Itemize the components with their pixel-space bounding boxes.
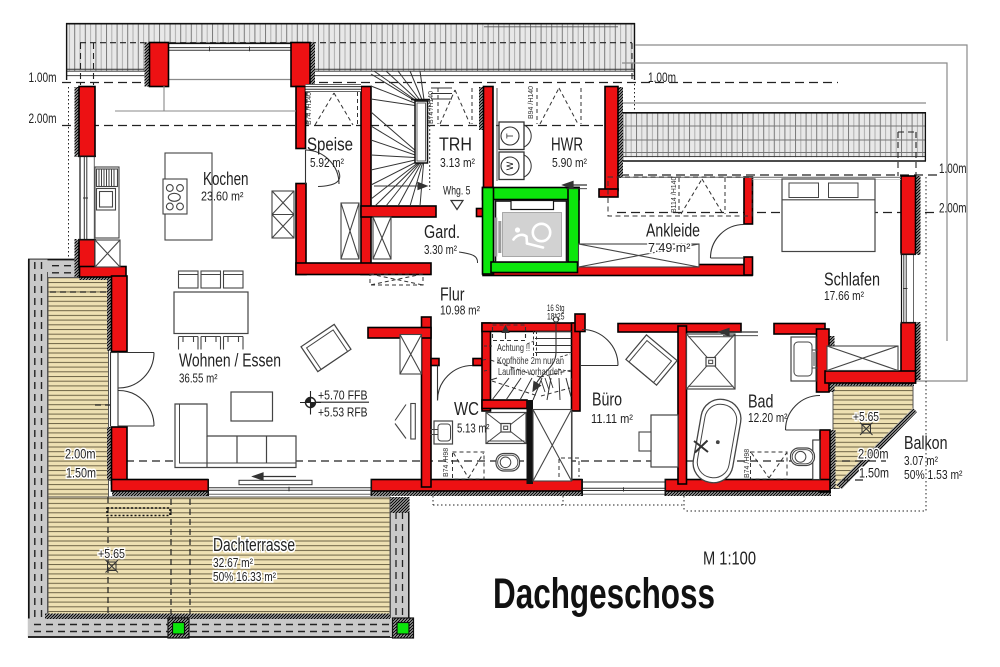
svg-text:11.11 m²: 11.11 m² (591, 412, 633, 426)
svg-text:Speise: Speise (307, 134, 353, 155)
svg-text:Wohnen / Essen: Wohnen / Essen (179, 350, 281, 371)
svg-text:50% 16.33 m²: 50% 16.33 m² (213, 570, 276, 584)
svg-text:M 1:100: M 1:100 (703, 549, 756, 569)
svg-text:7.49 m²: 7.49 m² (648, 241, 690, 255)
svg-text:Achtung !!: Achtung !! (497, 342, 530, 354)
svg-text:12.20 m²: 12.20 m² (748, 411, 788, 425)
svg-text:3.30 m²: 3.30 m² (424, 243, 457, 257)
svg-text:B74 /H140: B74 /H140 (306, 92, 313, 125)
svg-text:B74 /H98: B74 /H98 (443, 448, 450, 477)
svg-text:B114 /H140: B114 /H140 (671, 176, 678, 213)
svg-text:1.00m: 1.00m (939, 160, 967, 176)
svg-text:T: T (505, 133, 515, 139)
svg-text:B74 /H98: B74 /H98 (744, 449, 751, 478)
svg-text:23.60 m²: 23.60 m² (201, 190, 244, 204)
svg-text:2.00m: 2.00m (29, 110, 57, 126)
svg-text:+5.65: +5.65 (853, 409, 879, 424)
svg-text:Whg. 5: Whg. 5 (443, 184, 471, 198)
svg-text:2.00m: 2.00m (858, 447, 889, 462)
svg-text:+5.53 RFB: +5.53 RFB (318, 406, 368, 420)
svg-text:Büro: Büro (592, 389, 622, 410)
svg-text:Lauflinie vorhanden: Lauflinie vorhanden (498, 366, 562, 378)
svg-text:3.13 m²: 3.13 m² (440, 156, 475, 170)
svg-text:Flur: Flur (440, 284, 465, 305)
svg-text:Bad: Bad (748, 391, 774, 412)
svg-text:Balkon: Balkon (904, 432, 948, 453)
svg-text:50% 1.53 m²: 50% 1.53 m² (904, 468, 963, 482)
svg-text:+5.70 FFB: +5.70 FFB (318, 389, 368, 403)
svg-text:HWR: HWR (551, 134, 583, 155)
svg-text:18*25: 18*25 (547, 312, 565, 322)
svg-text:WC: WC (454, 398, 479, 419)
svg-text:1.00m: 1.00m (29, 69, 57, 85)
svg-text:Schlafen: Schlafen (824, 269, 880, 290)
svg-text:1.00m: 1.00m (648, 69, 676, 85)
svg-text:+5.65: +5.65 (98, 546, 125, 561)
svg-text:Gard.: Gard. (424, 221, 460, 242)
svg-text:1.50m: 1.50m (66, 466, 96, 481)
svg-text:5.13 m²: 5.13 m² (457, 422, 490, 436)
svg-text:Kochen: Kochen (203, 168, 249, 189)
svg-text:2.00m: 2.00m (939, 200, 967, 216)
svg-text:36.55 m²: 36.55 m² (179, 372, 218, 386)
svg-text:B94 /H140: B94 /H140 (528, 86, 535, 119)
svg-text:B74 /H140: B74 /H140 (428, 91, 435, 124)
svg-text:Dachterrasse: Dachterrasse (213, 534, 295, 555)
svg-text:Dachgeschoss: Dachgeschoss (493, 571, 715, 618)
svg-text:32.67 m²: 32.67 m² (213, 556, 253, 570)
svg-text:17.66 m²: 17.66 m² (824, 289, 864, 303)
svg-text:Ankleide: Ankleide (646, 220, 700, 241)
svg-text:3.07 m²: 3.07 m² (904, 454, 938, 468)
svg-text:1.50m: 1.50m (859, 466, 889, 481)
svg-text:2.00m: 2.00m (65, 447, 96, 462)
svg-text:5.90 m²: 5.90 m² (552, 156, 587, 170)
svg-text:TRH: TRH (439, 134, 472, 155)
svg-text:5.92 m²: 5.92 m² (310, 156, 344, 170)
svg-text:10.98 m²: 10.98 m² (440, 304, 480, 318)
svg-text:W: W (505, 161, 515, 170)
